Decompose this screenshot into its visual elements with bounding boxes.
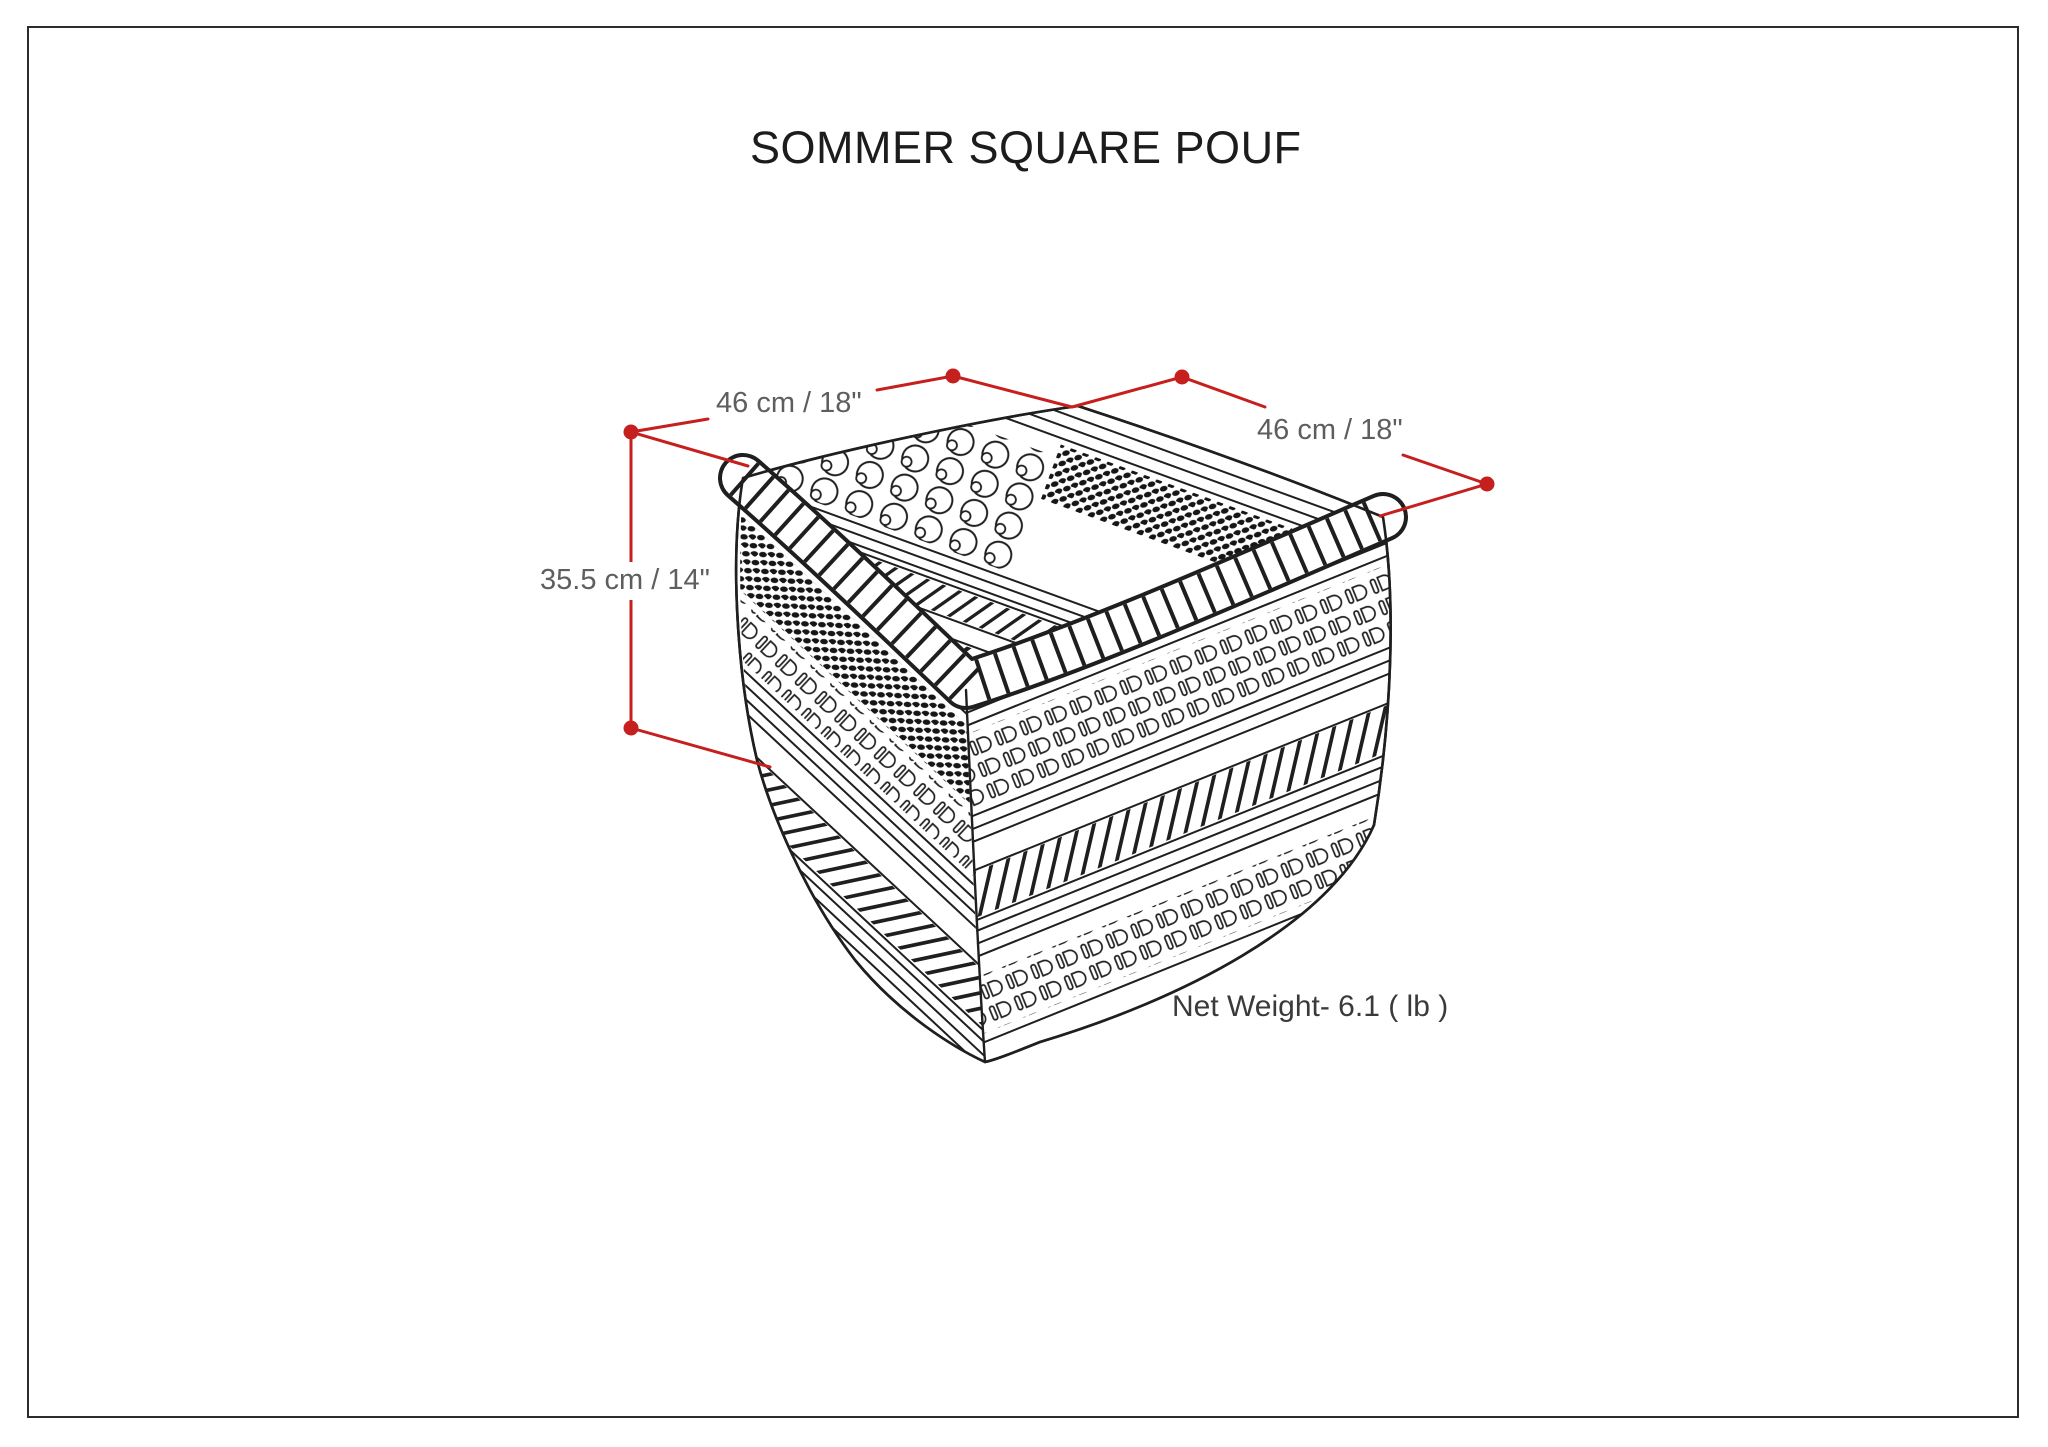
- dim-line: [1072, 377, 1182, 407]
- diagram-canvas: SOMMER SQUARE POUF: [0, 0, 2048, 1447]
- dimension-dot: [1175, 370, 1190, 385]
- dim-line: [877, 376, 953, 390]
- dimension-dot: [1480, 477, 1495, 492]
- dim-line: [1403, 455, 1487, 484]
- net-weight-label: Net Weight- 6.1 ( lb ): [1172, 990, 1448, 1024]
- pouf-illustration: [540, 330, 1570, 1090]
- dim-line: [1182, 377, 1265, 407]
- dimension-label-width: 46 cm / 18": [716, 388, 862, 420]
- dim-line: [631, 432, 748, 466]
- dimension-dot: [624, 425, 639, 440]
- dim-line: [953, 376, 1072, 407]
- dimension-label-depth: 46 cm / 18": [1257, 415, 1403, 447]
- dim-line: [631, 419, 708, 432]
- dim-line: [631, 728, 770, 767]
- page-title: SOMMER SQUARE POUF: [750, 122, 1302, 174]
- dimension-dot: [946, 369, 961, 384]
- dimension-dot: [624, 721, 639, 736]
- dimension-label-height: 35.5 cm / 14": [534, 562, 716, 600]
